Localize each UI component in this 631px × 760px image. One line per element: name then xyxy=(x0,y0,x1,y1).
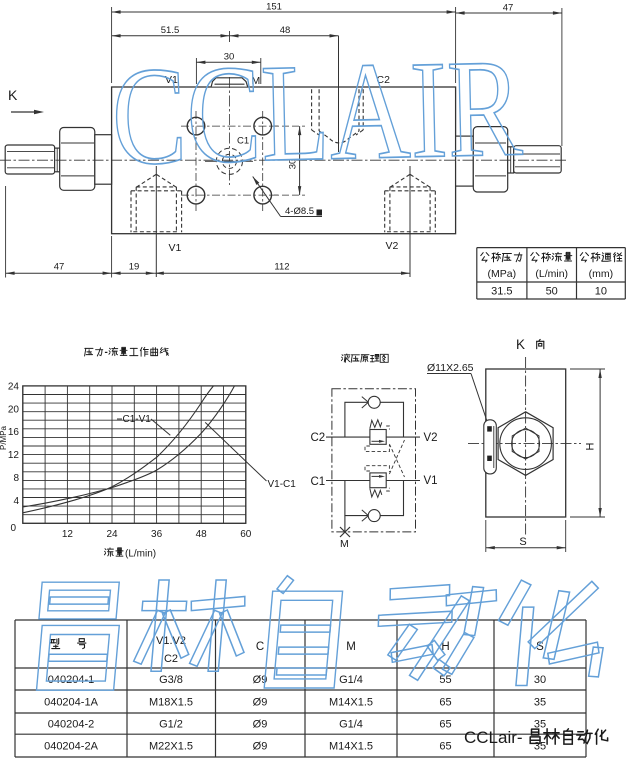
svg-text:(MPa): (MPa) xyxy=(488,268,517,280)
svg-text:151: 151 xyxy=(266,2,282,13)
svg-text:C2: C2 xyxy=(311,432,326,444)
svg-text:36: 36 xyxy=(151,529,163,540)
svg-text:V1: V1 xyxy=(424,475,438,487)
svg-text:P/MPa: P/MPa xyxy=(0,425,8,450)
svg-text:M18X1.5: M18X1.5 xyxy=(149,697,193,709)
svg-text:V1-C1: V1-C1 xyxy=(268,479,297,490)
svg-text:M: M xyxy=(346,641,356,653)
svg-text:48: 48 xyxy=(280,25,291,36)
svg-text:112: 112 xyxy=(274,262,289,273)
svg-text:16: 16 xyxy=(8,427,20,438)
svg-text:8: 8 xyxy=(13,473,19,484)
svg-text:M14X1.5: M14X1.5 xyxy=(329,741,373,753)
svg-text:G1/4: G1/4 xyxy=(339,674,363,686)
svg-text:60: 60 xyxy=(240,529,252,540)
svg-text:040204-1A: 040204-1A xyxy=(44,697,98,709)
svg-text:S: S xyxy=(519,536,526,548)
svg-text:50: 50 xyxy=(546,286,558,298)
svg-text:040204-1: 040204-1 xyxy=(48,674,95,686)
svg-text:C: C xyxy=(256,641,264,653)
svg-text:M22X1.5: M22X1.5 xyxy=(149,741,193,753)
svg-text:4-Ø8.5: 4-Ø8.5 xyxy=(285,206,314,217)
svg-text:040204-2A: 040204-2A xyxy=(44,741,98,753)
svg-text:20: 20 xyxy=(8,404,20,415)
svg-text:48: 48 xyxy=(196,529,208,540)
svg-text:Ø11X2.65: Ø11X2.65 xyxy=(427,362,474,374)
svg-text:65: 65 xyxy=(439,719,451,731)
svg-text:65: 65 xyxy=(439,741,451,753)
svg-text:35: 35 xyxy=(534,697,546,709)
svg-text:4: 4 xyxy=(13,496,19,507)
svg-text:M: M xyxy=(340,538,349,550)
svg-text:V2: V2 xyxy=(424,432,438,444)
svg-text:19: 19 xyxy=(129,262,140,273)
svg-text:C1-V1: C1-V1 xyxy=(123,414,152,425)
svg-text:Ø9: Ø9 xyxy=(253,741,268,753)
svg-text:V1: V1 xyxy=(169,242,182,254)
svg-text:K: K xyxy=(8,87,18,103)
svg-text:CCLair-: CCLair- xyxy=(464,728,523,747)
svg-text:24: 24 xyxy=(106,529,118,540)
svg-text:G3/8: G3/8 xyxy=(159,674,183,686)
svg-text:65: 65 xyxy=(439,697,451,709)
svg-text:G1/2: G1/2 xyxy=(159,719,183,731)
svg-text:0: 0 xyxy=(10,523,16,534)
svg-text:G1/4: G1/4 xyxy=(339,719,363,731)
svg-text:24: 24 xyxy=(8,381,20,392)
svg-text:M14X1.5: M14X1.5 xyxy=(329,697,373,709)
svg-text:10: 10 xyxy=(595,286,607,298)
svg-text:Ø9: Ø9 xyxy=(253,697,268,709)
svg-text:47: 47 xyxy=(503,3,514,14)
svg-text:(L/min): (L/min) xyxy=(125,549,156,560)
svg-text:51.5: 51.5 xyxy=(161,25,180,36)
svg-text:(L/min): (L/min) xyxy=(535,268,568,280)
svg-text:12: 12 xyxy=(8,450,20,461)
svg-text:12: 12 xyxy=(62,529,74,540)
svg-text:31.5: 31.5 xyxy=(491,286,512,298)
svg-text:47: 47 xyxy=(54,262,65,273)
svg-text:CCLAIR: CCLAIR xyxy=(110,30,524,194)
svg-text:C2: C2 xyxy=(164,653,178,665)
svg-text:V2: V2 xyxy=(386,240,399,252)
svg-text:30: 30 xyxy=(534,674,546,686)
svg-text:040204-2: 040204-2 xyxy=(48,719,95,731)
svg-text:55: 55 xyxy=(439,674,451,686)
svg-text:H: H xyxy=(585,442,597,450)
svg-text:(mm): (mm) xyxy=(589,268,614,280)
svg-text:C1: C1 xyxy=(311,476,326,488)
svg-text:-: - xyxy=(105,347,108,358)
svg-text:Ø9: Ø9 xyxy=(253,719,268,731)
svg-text:K: K xyxy=(516,337,525,352)
